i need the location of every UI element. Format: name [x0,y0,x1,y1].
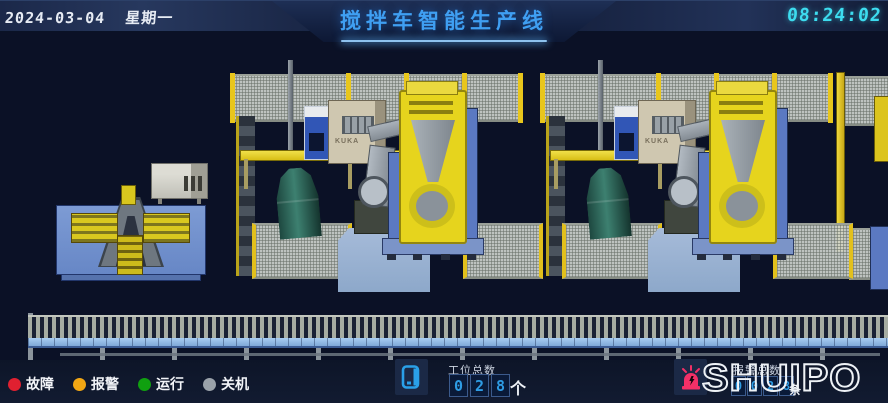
robot-cell-1: KUKA [230,60,535,310]
a-frame-clamp [121,185,136,205]
positioner-slot [409,101,453,105]
equipment-brand-label: KUKA [335,138,359,145]
positioner-cap [716,81,768,95]
mixer-drum-cone [274,166,322,239]
green-status-dot [138,378,151,391]
alarm-beacon-icon [678,364,704,391]
equipment-brand-label: KUKA [645,138,669,145]
fence-post [598,60,603,156]
fixture-right [143,213,190,243]
stations-counter-unit: 个 [510,375,526,399]
stations-counter-tile [395,359,428,395]
welding-positioner [709,90,777,244]
gray-status-dot [203,378,216,391]
status-legend: 故障报警运行关机 [8,374,249,394]
vent-slot [184,176,188,191]
center-column [117,235,143,275]
cabinet-top [305,107,329,117]
positioner-ring [409,184,455,228]
vent-slot [191,176,195,191]
digit: 0 [454,377,463,395]
cabinet-screen [309,133,324,151]
positioner-foot [751,254,760,260]
positioner-foot [723,254,732,260]
positioner-slot [719,101,763,105]
legend-item: 报警 [73,374,119,394]
positioner-foot [697,254,706,260]
cabinet-top [615,107,639,117]
conveyor-rollers [28,315,888,340]
positioner-foot [467,254,476,260]
robot-joint [358,176,390,208]
conveyor-support-bar [60,353,880,356]
legend-label: 运行 [156,374,184,394]
hmi-panel-icon [400,364,424,391]
rail-leg [244,159,248,189]
robot-cell-2: KUKA [540,60,845,310]
cabinet-leg [158,198,162,204]
cabinet-screen [619,133,634,151]
digit-box: 0 [449,374,468,397]
welding-positioner [399,90,467,244]
legend-item: 故障 [8,374,54,394]
red-status-dot [8,378,21,391]
vent-slot [198,176,202,191]
legend-label: 报警 [91,374,119,394]
digit: 2 [475,377,484,395]
digit: 8 [496,377,505,395]
mixer-drum-cone [584,166,632,239]
positioner-funnel [721,120,765,182]
robot-joint [668,176,700,208]
positioner-slot [409,110,453,114]
positioner-ring [719,184,765,228]
digit-box: 2 [470,374,489,397]
fixture-left [71,213,118,243]
conveyor-rail [28,338,888,348]
positioner-slot [719,110,763,114]
positioner-foot [387,254,396,260]
machine-edge-blue [870,226,888,290]
screen: 2024-03-04 星期一 搅拌车智能生产线 08:24:02 [0,0,888,403]
orange-status-dot [73,378,86,391]
legend-item: 运行 [138,374,184,394]
stations-counter-digits: 028 [449,374,510,397]
company-logo: SHUIPO [702,357,861,400]
positioner-foot [413,254,422,260]
digit-box: 8 [491,374,510,397]
fence-post [288,60,293,156]
control-cabinet [614,106,640,160]
electrical-cabinet [151,163,208,199]
rail-leg [554,159,558,189]
legend-label: 关机 [221,374,249,394]
production-line-scene: KUKA [0,0,888,403]
positioner-funnel [411,120,455,182]
legend-label: 故障 [26,374,54,394]
positioner-foot [777,254,786,260]
positioner-cap [406,81,458,95]
positioner-foot [441,254,450,260]
cabinet-leg [197,198,201,204]
machine-edge-yellow [874,96,888,162]
control-cabinet [304,106,330,160]
legend-item: 关机 [203,374,249,394]
